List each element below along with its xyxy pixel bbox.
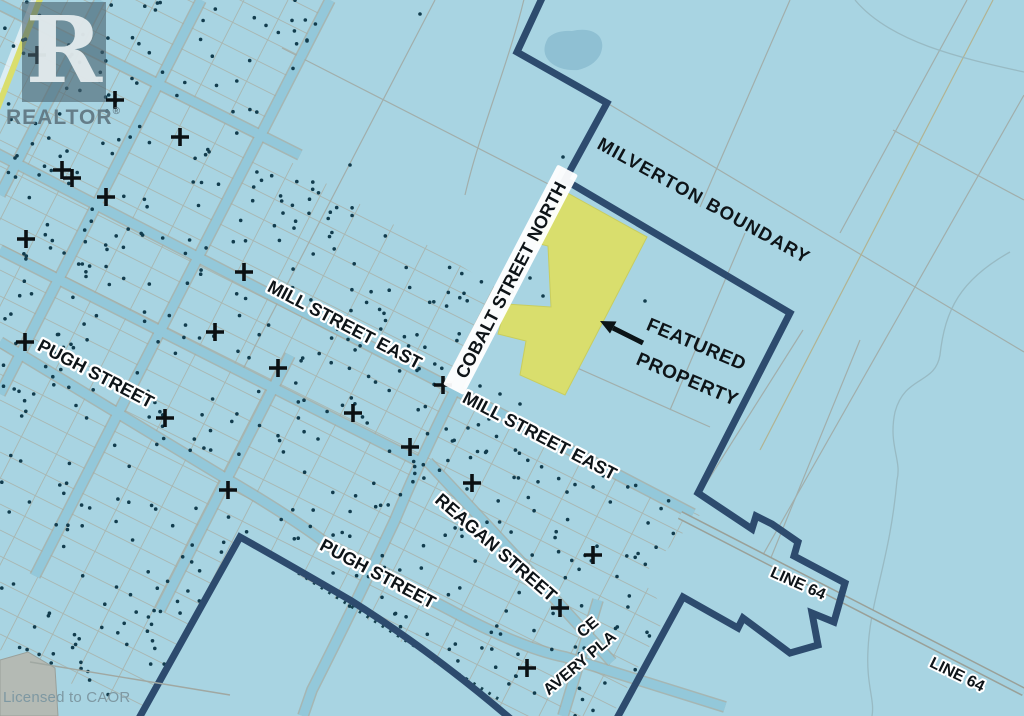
realtor-logo-box: R [22, 2, 106, 102]
map-image: COBALT STREET NORTH MILL STREET EAST MIL… [0, 0, 1024, 716]
realtor-brand-text: REALTOR [6, 106, 113, 129]
license-attribution: Licensed to CAOR [3, 689, 130, 706]
realtor-watermark: R REALTOR® [22, 2, 142, 130]
realtor-logo-r-icon: R [26, 4, 102, 96]
registered-trademark-symbol: ® [113, 106, 120, 117]
map-canvas: COBALT STREET NORTH MILL STREET EAST MIL… [0, 0, 1024, 716]
realtor-brand: REALTOR® [6, 106, 142, 130]
